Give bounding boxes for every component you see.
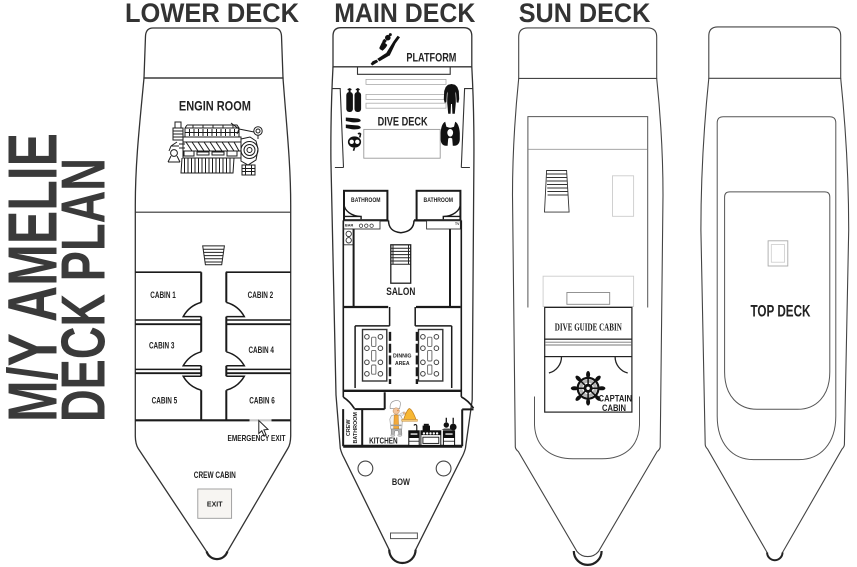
svg-text:CREW CABIN: CREW CABIN: [194, 470, 236, 481]
svg-text:TOP DECK: TOP DECK: [751, 302, 811, 320]
svg-text:CABIN 2: CABIN 2: [248, 290, 274, 300]
svg-text:BOW: BOW: [392, 477, 410, 487]
svg-text:CABIN 3: CABIN 3: [149, 341, 175, 351]
svg-text:BATHROOM: BATHROOM: [353, 412, 359, 444]
svg-text:CABIN 5: CABIN 5: [152, 395, 178, 405]
svg-text:CREW: CREW: [346, 419, 352, 436]
svg-text:BATHROOM: BATHROOM: [424, 197, 454, 204]
svg-text:BAR: BAR: [345, 224, 353, 228]
svg-text:DECK PLAN: DECK PLAN: [50, 158, 119, 422]
svg-text:DINNIG: DINNIG: [393, 354, 412, 360]
svg-text:CABIN 4: CABIN 4: [248, 345, 274, 355]
svg-text:AREA: AREA: [395, 361, 410, 367]
svg-text:TV: TV: [455, 222, 460, 226]
svg-text:SUN DECK: SUN DECK: [519, 0, 651, 28]
svg-text:DIVE DECK: DIVE DECK: [378, 117, 429, 129]
svg-text:CABIN: CABIN: [602, 403, 626, 413]
svg-text:DIVE GUIDE CABIN: DIVE GUIDE CABIN: [555, 323, 623, 334]
svg-text:EXIT: EXIT: [207, 501, 223, 508]
svg-text:KITCHEN: KITCHEN: [369, 436, 398, 446]
svg-text:LOWER DECK: LOWER DECK: [125, 0, 299, 28]
svg-text:BATHROOM: BATHROOM: [351, 197, 381, 204]
svg-text:ENGIN ROOM: ENGIN ROOM: [179, 97, 251, 113]
svg-text:PLATFORM: PLATFORM: [406, 53, 456, 65]
svg-text:CABIN 6: CABIN 6: [249, 395, 275, 405]
svg-text:MAIN DECK: MAIN DECK: [334, 0, 475, 28]
svg-text:SALON: SALON: [386, 286, 415, 298]
svg-text:CABIN 1: CABIN 1: [150, 290, 176, 300]
svg-text:EMERGENCY EXIT: EMERGENCY EXIT: [228, 433, 287, 443]
